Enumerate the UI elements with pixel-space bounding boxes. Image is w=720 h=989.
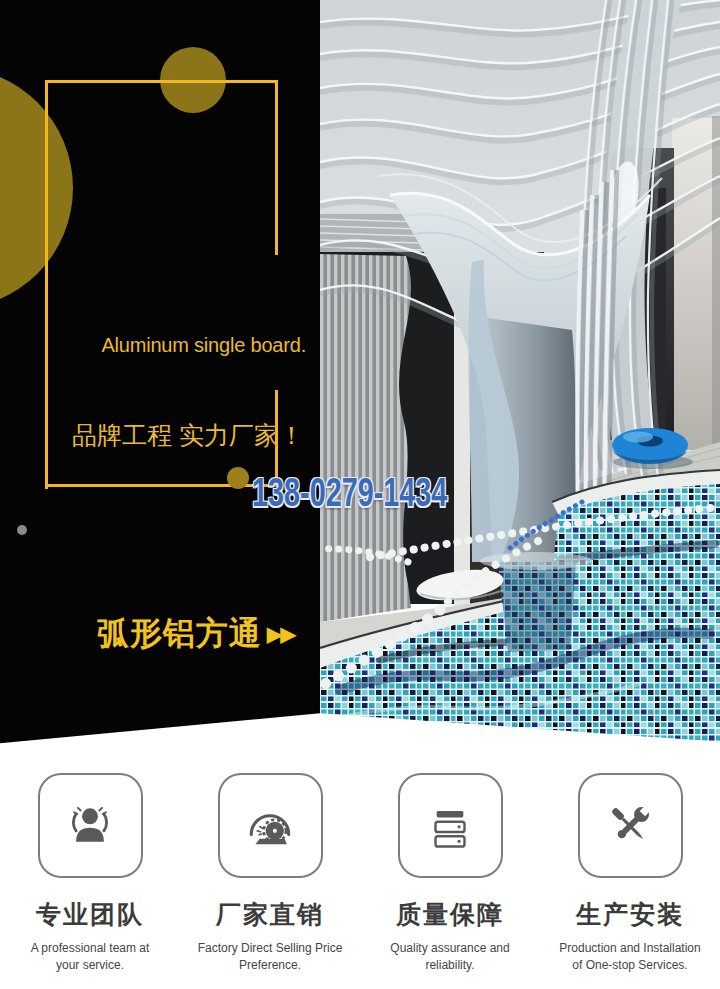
feature-title: 生产安装 [576,898,684,931]
feature-quality: 质量保障 Quality assurance and reliability. [360,773,540,989]
saw-icon [241,797,299,855]
server-icon [421,797,479,855]
feature-icon-box [38,773,143,878]
feature-description: Factory Direct Selling Price Preference. [181,940,359,975]
features-section: 专业团队 A professional team at your service… [0,750,720,989]
headline-english: Aluminum single board. [0,334,306,357]
feature-title: 厂家直销 [216,898,324,931]
gold-frame-bottom [45,484,283,487]
feature-team: 专业团队 A professional team at your service… [0,773,180,989]
feature-installation: 生产安装 Production and Installation of One-… [540,773,720,989]
team-icon [61,797,119,855]
phone-number[interactable]: 138-0279-1434 [252,470,447,515]
wavy-slat-wall [320,254,411,622]
gray-dot [17,525,27,535]
pool-photo [320,0,720,750]
product-title: 弧形铝方通▶▶ [97,612,294,656]
feature-icon-box [218,773,323,878]
left-black-panel: Aluminum single board. 品牌工程 实力厂家！ 弧形铝方通▶… [0,0,320,750]
feature-factory-direct: 厂家直销 Factory Direct Selling Price Prefer… [180,773,360,989]
feature-description: A professional team at your service. [1,940,179,975]
gold-frame-right-upper [275,80,278,255]
gold-frame-left [45,80,48,489]
tools-icon [601,797,659,855]
product-title-text: 弧形铝方通 [97,615,262,651]
gold-frame-top [45,80,278,83]
feature-description: Production and Installation of One-stop … [541,940,719,975]
feature-title: 专业团队 [36,898,144,931]
gold-circle-small [227,467,249,489]
poster-page: Aluminum single board. 品牌工程 实力厂家！ 弧形铝方通▶… [0,0,720,989]
feature-title: 质量保障 [396,898,504,931]
feature-icon-box [578,773,683,878]
feature-icon-box [398,773,503,878]
headline-chinese: 品牌工程 实力厂家！ [72,419,304,452]
gold-circle-large [0,67,73,309]
arrow-right-icon: ▶▶ [267,622,294,646]
hero-banner: Aluminum single board. 品牌工程 实力厂家！ 弧形铝方通▶… [0,0,720,750]
feature-description: Quality assurance and reliability. [361,940,539,975]
